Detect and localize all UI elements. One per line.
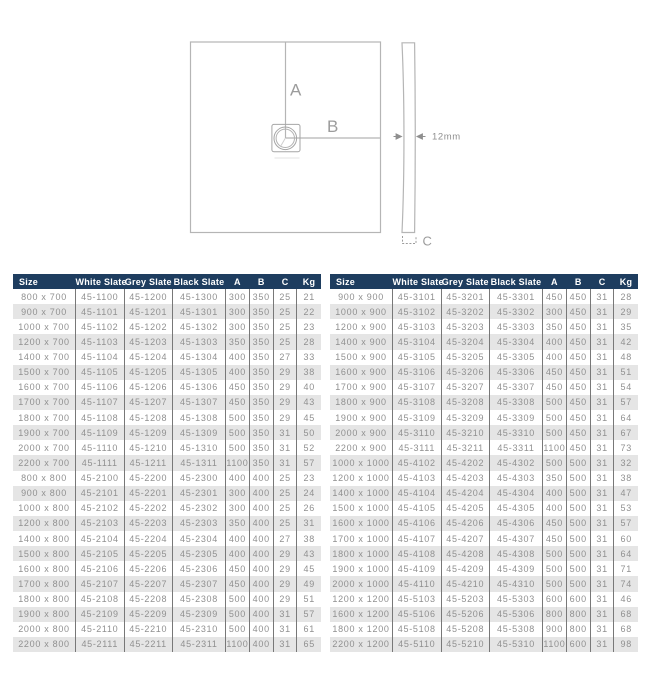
svg-text:B: B bbox=[327, 117, 338, 136]
svg-text:A: A bbox=[290, 81, 302, 100]
svg-text:12mm: 12mm bbox=[432, 132, 461, 143]
svg-text:C: C bbox=[423, 234, 432, 249]
